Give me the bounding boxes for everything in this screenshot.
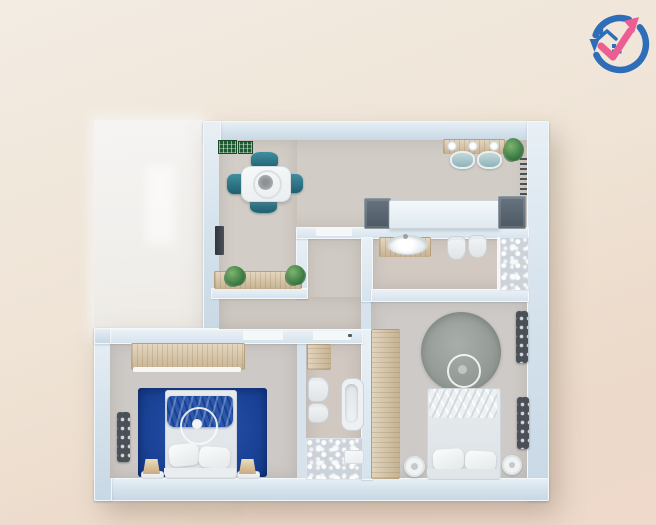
inner-wall-dining-bottom bbox=[211, 288, 308, 299]
floor-dining bbox=[219, 140, 297, 288]
door-bathroom-small bbox=[313, 331, 351, 340]
floor-bedroom-left bbox=[110, 342, 297, 478]
outer-wall-right bbox=[527, 121, 549, 501]
outer-wall-bottom bbox=[94, 478, 549, 501]
floor-bathroom-small bbox=[306, 342, 361, 478]
inner-wall-bath-bedroom-divider bbox=[371, 289, 529, 302]
floor-bedroom-right bbox=[371, 300, 527, 478]
logo-graphic bbox=[584, 6, 656, 78]
brand-logo bbox=[584, 6, 656, 78]
floor-bathroom-top bbox=[371, 237, 527, 290]
terrace-light-streak bbox=[146, 165, 174, 245]
door-hallway bbox=[316, 228, 352, 236]
door-handle bbox=[348, 334, 352, 337]
outer-wall-top bbox=[203, 121, 549, 142]
inner-wall-hall-right-lower bbox=[361, 329, 373, 480]
door-bedroom-left bbox=[243, 331, 283, 340]
floorplan-render bbox=[0, 0, 656, 525]
floor-corridor bbox=[219, 297, 361, 329]
